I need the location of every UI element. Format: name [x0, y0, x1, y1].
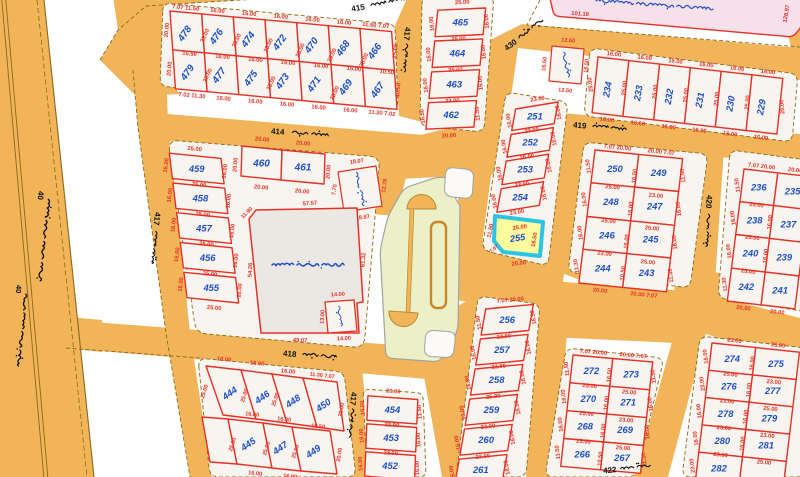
svg-text:20.00: 20.00: [386, 388, 401, 395]
svg-text:243: 243: [638, 267, 655, 278]
svg-text:454: 454: [384, 404, 401, 415]
svg-text:465: 465: [452, 17, 469, 28]
svg-text:239: 239: [775, 252, 792, 263]
svg-text:13.00: 13.00: [320, 310, 327, 324]
svg-text:14.00: 14.00: [331, 292, 345, 299]
svg-text:261: 261: [472, 464, 489, 475]
svg-text:25.00: 25.00: [582, 383, 597, 390]
svg-text:247: 247: [646, 201, 663, 212]
svg-text:244: 244: [594, 263, 611, 274]
svg-text:12.50: 12.50: [561, 37, 575, 44]
svg-text:271: 271: [619, 396, 636, 407]
svg-text:20.00: 20.00: [442, 133, 457, 140]
svg-text:420: 420: [704, 195, 714, 209]
svg-text:461: 461: [294, 163, 312, 174]
svg-text:57.57: 57.57: [303, 201, 318, 208]
svg-text:16.00: 16.00: [415, 461, 422, 476]
svg-text:16.00: 16.00: [283, 473, 298, 477]
svg-text:280: 280: [713, 435, 730, 446]
svg-text:54.26: 54.26: [248, 262, 255, 278]
svg-text:251: 251: [526, 111, 543, 122]
svg-text:272: 272: [583, 365, 600, 376]
svg-text:462: 462: [442, 109, 459, 120]
svg-text:20.00: 20.00: [295, 188, 310, 195]
svg-text:273: 273: [622, 368, 639, 379]
svg-text:418: 418: [283, 349, 298, 359]
svg-text:23.00: 23.00: [619, 417, 634, 424]
svg-text:269: 269: [616, 424, 633, 435]
svg-text:14.00: 14.00: [337, 336, 351, 343]
svg-text:16.00: 16.00: [358, 456, 365, 471]
svg-text:61.32: 61.32: [361, 252, 368, 267]
svg-text:16.50: 16.50: [541, 57, 548, 71]
svg-text:16.50: 16.50: [583, 59, 590, 73]
svg-text:281: 281: [757, 440, 774, 451]
svg-text:245: 245: [642, 234, 659, 245]
svg-text:25.00: 25.00: [455, 0, 470, 6]
svg-text:457: 457: [195, 222, 212, 233]
svg-text:260: 260: [477, 434, 494, 445]
svg-text:254: 254: [511, 191, 528, 202]
svg-text:20.00: 20.00: [325, 164, 332, 179]
svg-text:417: 417: [402, 27, 412, 42]
svg-text:259: 259: [483, 404, 500, 415]
svg-text:268: 268: [576, 421, 593, 432]
svg-text:40: 40: [14, 285, 24, 294]
svg-text:252: 252: [521, 137, 538, 148]
svg-text:248: 248: [602, 196, 619, 207]
svg-text:20.00: 20.00: [296, 140, 311, 147]
svg-text:20.00: 20.00: [255, 136, 270, 143]
svg-text:23.00: 23.00: [383, 450, 398, 457]
svg-text:25.00: 25.00: [622, 389, 637, 396]
svg-text:266: 266: [573, 448, 590, 459]
svg-text:459: 459: [188, 163, 205, 174]
svg-text:49.07: 49.07: [293, 338, 308, 345]
svg-text:453: 453: [382, 432, 399, 443]
svg-text:278: 278: [717, 408, 734, 419]
svg-text:256: 256: [498, 314, 515, 325]
svg-text:23.00: 23.00: [445, 98, 460, 105]
svg-text:241: 241: [771, 285, 788, 296]
svg-text:460: 460: [252, 159, 270, 170]
svg-text:16.00: 16.00: [416, 433, 423, 448]
svg-text:16.50: 16.50: [360, 400, 367, 415]
svg-text:249: 249: [650, 167, 667, 178]
svg-text:456: 456: [199, 252, 216, 263]
svg-text:270: 270: [579, 393, 596, 404]
svg-text:20.00: 20.00: [232, 157, 239, 172]
svg-text:463: 463: [445, 78, 462, 89]
svg-text:455: 455: [202, 282, 219, 293]
svg-text:40: 40: [36, 191, 46, 201]
svg-text:25.00: 25.00: [451, 36, 466, 43]
svg-text:16.00: 16.00: [248, 470, 263, 477]
svg-text:236: 236: [750, 182, 767, 193]
svg-text:276: 276: [720, 381, 737, 392]
svg-text:238: 238: [746, 214, 763, 225]
svg-text:25.00: 25.00: [615, 445, 630, 452]
svg-text:25.00: 25.00: [576, 439, 591, 446]
svg-text:275: 275: [767, 358, 784, 369]
svg-text:279: 279: [761, 412, 778, 423]
svg-text:452: 452: [381, 460, 398, 471]
svg-text:25.00: 25.00: [448, 67, 463, 74]
svg-text:422: 422: [603, 465, 618, 475]
svg-text:282: 282: [710, 462, 727, 473]
svg-text:11.50: 11.50: [417, 405, 424, 419]
svg-text:417: 417: [152, 212, 163, 227]
svg-text:16.00: 16.00: [359, 428, 366, 443]
svg-text:235: 235: [784, 186, 800, 197]
svg-text:253: 253: [516, 164, 533, 175]
svg-text:20.00: 20.00: [254, 184, 269, 191]
svg-text:257: 257: [493, 344, 510, 355]
svg-text:414: 414: [271, 127, 286, 137]
svg-text:274: 274: [723, 353, 740, 364]
svg-text:23.00: 23.00: [384, 422, 399, 429]
svg-text:237: 237: [780, 218, 797, 229]
svg-text:258: 258: [488, 374, 505, 385]
svg-text:458: 458: [192, 193, 209, 204]
svg-text:417: 417: [348, 392, 358, 407]
svg-text:246: 246: [598, 229, 615, 240]
svg-text:464: 464: [449, 48, 466, 59]
svg-text:419: 419: [573, 120, 588, 130]
svg-text:267: 267: [613, 452, 630, 463]
svg-text:25.00: 25.00: [579, 411, 594, 418]
svg-text:240: 240: [742, 248, 759, 259]
svg-text:250: 250: [606, 163, 623, 174]
svg-text:242: 242: [737, 281, 754, 292]
svg-text:277: 277: [764, 385, 781, 396]
svg-text:12.50: 12.50: [558, 87, 572, 94]
